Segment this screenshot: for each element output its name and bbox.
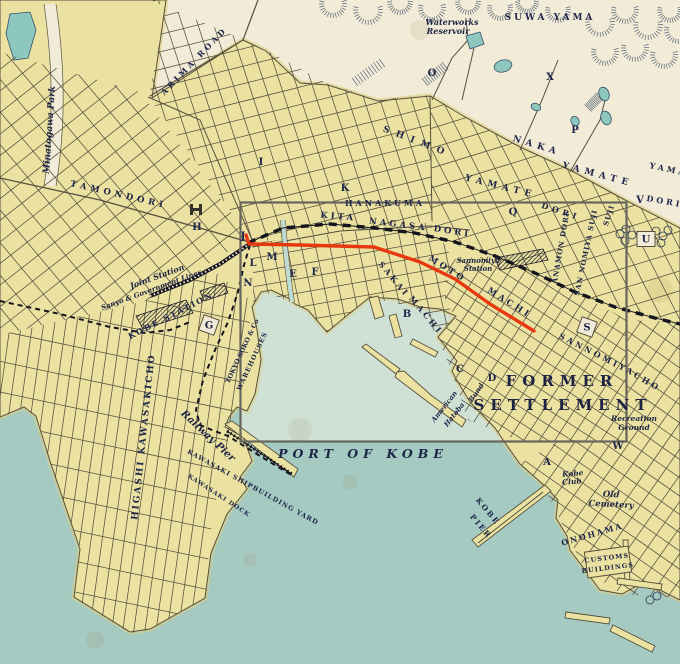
block-letter-f: F	[311, 267, 318, 278]
map-label-settlement: SETTLEMENT	[474, 396, 653, 414]
block-letter-s: S	[583, 323, 590, 334]
block-letter-p: P	[571, 125, 579, 136]
block-letter-m: M	[266, 252, 277, 263]
block-letter-d: D	[488, 373, 497, 384]
map-label-club: Club	[562, 476, 582, 487]
map-label-ground: Ground	[618, 423, 650, 432]
block-letter-u: U	[642, 235, 651, 246]
map-label-suwa-yama: SUWA YAMA	[505, 13, 596, 23]
block-letter-e: E	[289, 269, 297, 280]
block-letter-j: J	[240, 231, 246, 242]
block-letter-q: Q	[509, 207, 518, 218]
block-letter-k: K	[341, 183, 350, 194]
map-label-port-of-kobe: PORT OF KOBE	[277, 446, 448, 461]
block-letter-w: W	[611, 441, 624, 452]
block-letter-c: C	[456, 364, 464, 375]
map-label-hanakuma: HANAKUMA	[345, 198, 425, 208]
block-letter-h: H	[192, 222, 201, 233]
map-label-former: FORMER	[506, 372, 619, 390]
map-label-yama: YAMA	[648, 160, 680, 178]
block-letter-b: B	[403, 309, 411, 320]
map-label-dori: DORI	[646, 193, 680, 209]
map-label-recreation: Recreation	[610, 414, 657, 423]
block-letter-l: L	[249, 258, 256, 269]
block-letter-x: X	[546, 72, 554, 83]
kobe-map: GSUOXPQKIHJBCDAWVLMNEFMinatogawa ParkARI…	[0, 0, 680, 664]
block-letter-n: N	[243, 278, 252, 289]
map-label-reservoir: Reservoir	[426, 26, 471, 36]
block-letter-i: I	[259, 157, 264, 168]
block-letter-a: A	[542, 457, 551, 468]
map-canvas: GSUOXPQKIHJBCDAWVLMNEFMinatogawa ParkARI…	[0, 0, 680, 664]
block-letter-g: G	[205, 321, 214, 332]
block-letter-o: O	[428, 68, 437, 79]
hill-hachures	[319, 0, 680, 112]
block-letter-v: V	[635, 195, 644, 206]
map-label-station: Station	[464, 264, 492, 273]
